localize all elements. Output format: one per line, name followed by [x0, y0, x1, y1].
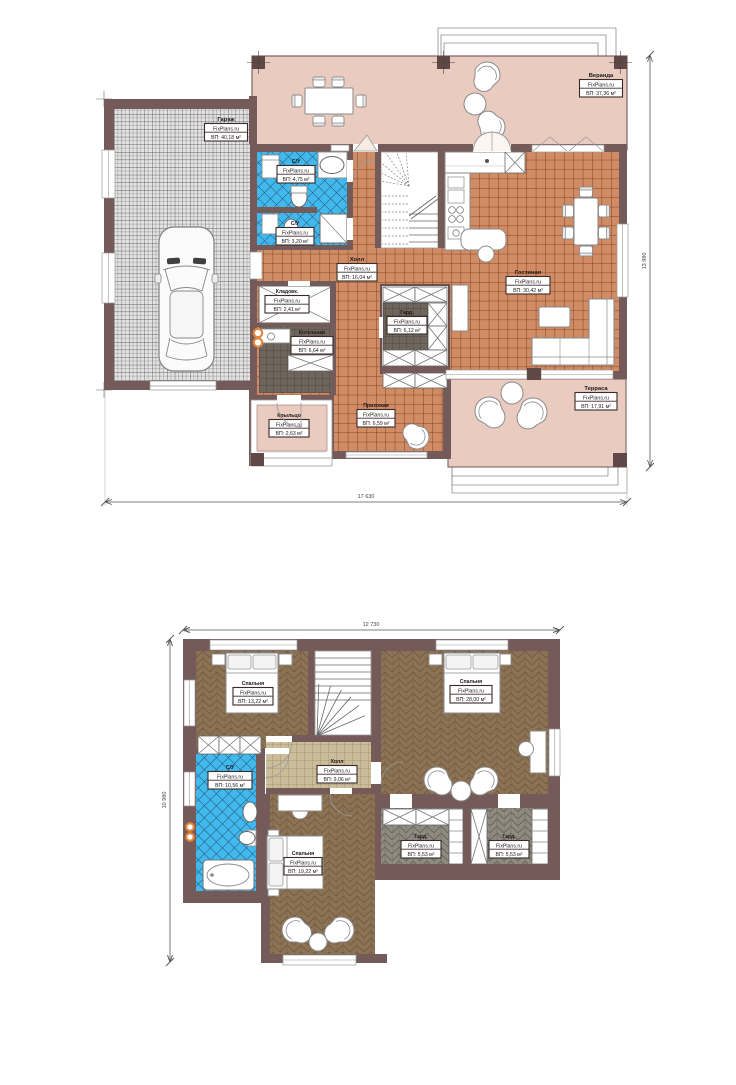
svg-text:С/У: С/У — [226, 765, 235, 771]
svg-text:FixPlans.ru: FixPlans.ru — [283, 168, 309, 174]
svg-text:ВП: 6,59 м²: ВП: 6,59 м² — [363, 421, 390, 427]
svg-text:ВП: 9,06 м²: ВП: 9,06 м² — [324, 777, 351, 783]
svg-text:12 730: 12 730 — [363, 622, 380, 628]
svg-text:Спальня: Спальня — [242, 681, 264, 687]
svg-text:ВП: 28,00 м²: ВП: 28,00 м² — [456, 697, 486, 703]
svg-text:Гард.: Гард. — [502, 834, 516, 840]
svg-text:ВП: 4,75 м²: ВП: 4,75 м² — [283, 177, 310, 183]
svg-text:ВП: 3,20 м²: ВП: 3,20 м² — [282, 239, 309, 245]
svg-text:Холл: Холл — [350, 257, 365, 263]
svg-text:10 980: 10 980 — [162, 792, 168, 809]
svg-text:С/У: С/У — [292, 159, 301, 165]
svg-text:FixPlans.ru: FixPlans.ru — [583, 395, 609, 401]
svg-text:ВП: 16,04 м²: ВП: 16,04 м² — [342, 275, 372, 281]
svg-text:Холл: Холл — [330, 759, 343, 765]
svg-text:FixPlans.ru: FixPlans.ru — [299, 339, 325, 345]
svg-text:17 630: 17 630 — [358, 494, 375, 500]
svg-text:FixPlans.ru: FixPlans.ru — [282, 230, 308, 236]
svg-text:ВП: 2,63 м²: ВП: 2,63 м² — [276, 431, 303, 437]
svg-text:FixPlans.ru: FixPlans.ru — [213, 126, 239, 132]
svg-text:ВП: 2,41 м²: ВП: 2,41 м² — [274, 307, 301, 313]
svg-text:FixPlans.ru: FixPlans.ru — [588, 82, 614, 88]
svg-text:Спальня: Спальня — [460, 679, 482, 685]
svg-text:ВП: 37,36 м²: ВП: 37,36 м² — [586, 91, 616, 97]
svg-text:FixPlans.ru: FixPlans.ru — [515, 279, 541, 285]
svg-text:FixPlans.ru: FixPlans.ru — [240, 690, 266, 696]
svg-text:Веранда: Веранда — [589, 73, 614, 79]
svg-text:FixPlans.ru: FixPlans.ru — [217, 774, 243, 780]
svg-text:ВП: 6,12 м²: ВП: 6,12 м² — [394, 328, 421, 334]
svg-text:ВП: 13,22 м²: ВП: 13,22 м² — [238, 699, 268, 705]
svg-text:ВП: 40,18 м²: ВП: 40,18 м² — [211, 135, 241, 141]
svg-text:FixPlans.ru: FixPlans.ru — [344, 266, 370, 272]
svg-text:13 980: 13 980 — [642, 253, 648, 270]
svg-text:FixPlans.ru: FixPlans.ru — [274, 298, 300, 304]
svg-text:Спальня: Спальня — [292, 851, 314, 857]
svg-text:С/У: С/У — [291, 221, 300, 227]
svg-text:Гараж: Гараж — [217, 117, 235, 123]
svg-text:FixPlans.ru: FixPlans.ru — [458, 688, 484, 694]
svg-text:Гард.: Гард. — [414, 834, 428, 840]
svg-text:FixPlans.ru: FixPlans.ru — [324, 768, 350, 774]
svg-text:ВП: 6,64 м²: ВП: 6,64 м² — [299, 348, 326, 354]
svg-text:ВП: 5,53 м²: ВП: 5,53 м² — [408, 852, 435, 858]
svg-text:Терраса: Терраса — [584, 386, 608, 392]
svg-text:Кладовк.: Кладовк. — [276, 289, 299, 295]
svg-text:Котельная: Котельная — [299, 330, 325, 336]
svg-text:FixPlans.ru: FixPlans.ru — [496, 843, 522, 849]
svg-text:Прихожая: Прихожая — [363, 403, 389, 409]
svg-text:ВП: 10,56 м²: ВП: 10,56 м² — [215, 783, 245, 789]
svg-text:ВП: 17,91 м²: ВП: 17,91 м² — [581, 404, 611, 410]
svg-text:FixPlans.ru: FixPlans.ru — [408, 843, 434, 849]
svg-text:FixPlans.ru: FixPlans.ru — [290, 860, 316, 866]
svg-text:FixPlans.ru: FixPlans.ru — [363, 412, 389, 418]
svg-text:ВП: 19,22 м²: ВП: 19,22 м² — [288, 869, 318, 875]
svg-text:FixPlans.ru: FixPlans.ru — [394, 319, 420, 325]
svg-text:Гард.: Гард. — [400, 310, 414, 316]
svg-text:FixPlans.ru: FixPlans.ru — [276, 422, 302, 428]
svg-text:Гостиная: Гостиная — [515, 270, 541, 276]
svg-text:ВП: 30,42 м²: ВП: 30,42 м² — [513, 288, 543, 294]
svg-text:ВП: 5,53 м²: ВП: 5,53 м² — [496, 852, 523, 858]
